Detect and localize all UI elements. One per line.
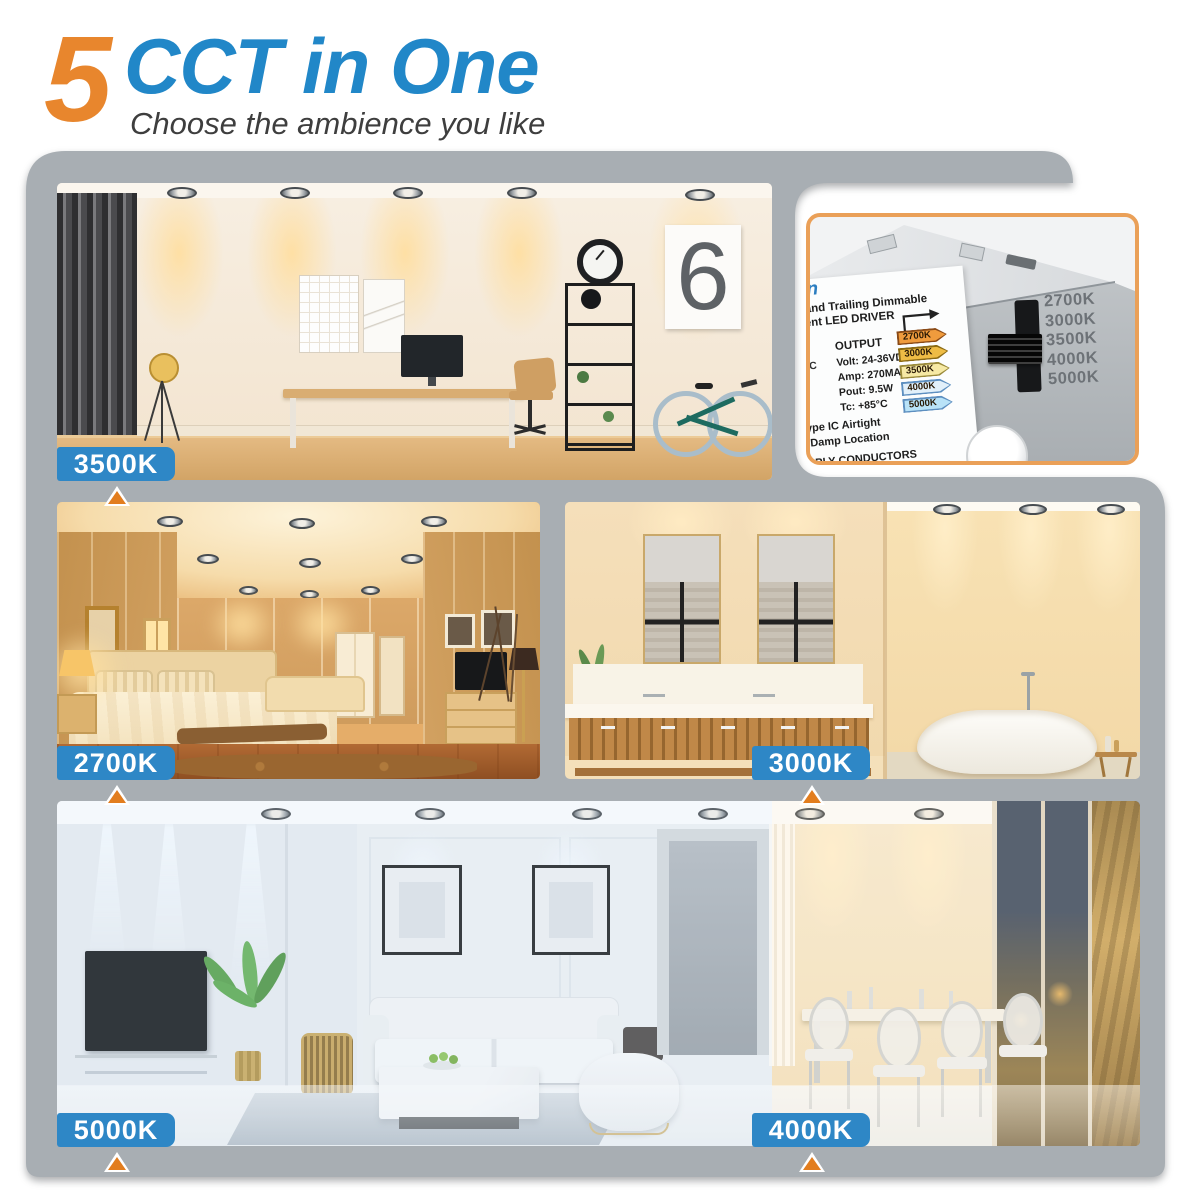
dining-chair-back	[877, 1007, 921, 1069]
downlight-icon	[167, 187, 197, 199]
downlight-icon	[415, 808, 445, 820]
office-photo: 6	[57, 183, 772, 480]
tub-faucet-spout	[1021, 672, 1035, 676]
sofa-back	[369, 997, 619, 1043]
dining-chair-back	[941, 1001, 983, 1061]
switch-scale-step: 2700K	[1043, 290, 1095, 312]
cct-tag-label: 3500K	[899, 363, 940, 378]
cct-badge-2700k: 2700K	[57, 746, 175, 780]
cct-badge-5000k: 5000K	[57, 1113, 175, 1147]
wall-faucet	[753, 694, 775, 697]
downlight-icon	[933, 504, 961, 515]
downlight-icon	[280, 187, 310, 199]
downlight-icon	[507, 187, 537, 199]
cct-tag-2700k: 2700K	[896, 327, 947, 345]
downlight-icon	[361, 586, 380, 595]
slide-switch-knob	[988, 334, 1042, 364]
dining-chair-seat	[999, 1045, 1047, 1057]
note-conductors: PPLY CONDUCTORS	[808, 448, 918, 465]
cct-tag-5000k: 5000K	[902, 395, 953, 413]
downlight-icon	[1097, 504, 1125, 515]
shelf-plant	[603, 411, 614, 422]
cct-tag-label: 2700K	[896, 329, 937, 344]
downlight-icon	[914, 808, 944, 820]
counter	[565, 704, 873, 718]
cct-badge-3000k: 3000K	[752, 746, 870, 780]
spec-tc: Tc: +85°C	[840, 398, 888, 414]
cct-tag-4000k: 4000K	[901, 378, 952, 396]
bedroom-rug	[167, 754, 477, 779]
glassware	[847, 991, 852, 1009]
page-subtitle: Choose the ambience you like	[130, 106, 545, 142]
framed-print	[382, 865, 462, 955]
cabinet-handle	[835, 726, 849, 729]
downlight-icon	[289, 518, 315, 529]
dresser	[445, 692, 517, 746]
bottle	[1105, 736, 1111, 752]
switch-scale-step: 5000K	[1048, 368, 1100, 390]
bathroom-photo	[565, 502, 1140, 779]
stool-lamp	[149, 353, 179, 383]
downlight-icon	[421, 516, 447, 527]
glassware	[869, 987, 873, 1009]
monitor	[401, 335, 463, 377]
downlight-icon	[197, 554, 219, 564]
switch-scale-step: 4000K	[1047, 348, 1099, 370]
art-frame	[445, 614, 475, 648]
desk-leg	[290, 398, 296, 448]
cct-tag-label: 3000K	[898, 346, 939, 361]
framed-print	[532, 865, 610, 955]
bottle	[1114, 740, 1119, 752]
cct-badge-4000k: 4000K	[752, 1113, 870, 1147]
cct-tag-label: 4000K	[901, 380, 942, 395]
plant-pot	[235, 1051, 261, 1081]
spec-pout: Pout: 9.5W	[839, 382, 894, 399]
cabinet-handle	[781, 726, 795, 729]
wall-faucet	[643, 694, 665, 697]
tv-console	[75, 1055, 217, 1058]
living-floor-sheen	[57, 1085, 1140, 1146]
apple	[439, 1052, 448, 1061]
brand-logo-fragment: un	[806, 278, 819, 302]
apple	[429, 1054, 438, 1063]
cct-tag-label: 5000K	[902, 397, 943, 412]
downlight-icon	[795, 808, 825, 820]
bathroom-window	[757, 534, 835, 664]
print-mat	[549, 882, 593, 938]
chair-back	[513, 357, 556, 395]
window-grid	[759, 582, 833, 662]
switch-scale-step: 3000K	[1045, 309, 1097, 331]
downlight-icon	[685, 189, 715, 201]
dining-chair-seat	[873, 1065, 925, 1077]
chaise-sofa	[265, 676, 365, 712]
downlight-icon	[401, 554, 423, 564]
desk-top	[283, 389, 525, 398]
tv-console	[85, 1071, 207, 1074]
downlight-icon	[299, 558, 321, 568]
bathroom-window	[643, 534, 721, 664]
cct-tag-3000k: 3000K	[898, 344, 949, 362]
dining-chair-seat	[937, 1057, 987, 1069]
side-door	[379, 636, 405, 716]
pegboard	[299, 275, 359, 353]
driver-label-sticker: un c)and Trailing Dimmable rrent LED DRI…	[806, 266, 981, 465]
shelf-plant	[577, 371, 589, 383]
floor-lamp-pole	[522, 670, 525, 742]
print-mat	[399, 882, 445, 938]
title-number: 5	[44, 18, 112, 140]
glassware	[919, 989, 924, 1009]
poster-numeral: 6	[676, 223, 729, 330]
downlight-icon	[393, 187, 423, 199]
living-dining-photo	[57, 801, 1140, 1146]
switch-scale: 2700K 3000K 3500K 4000K 5000K	[1043, 290, 1099, 390]
dining-chair-seat	[805, 1049, 853, 1061]
window-glow	[1047, 981, 1073, 1007]
curtain-sheer	[769, 824, 795, 1066]
wall-light-pool	[207, 594, 277, 654]
cabinet-handle	[601, 726, 615, 729]
shelf-ball	[581, 289, 601, 309]
poster: 6	[665, 225, 741, 329]
wall-clock	[577, 239, 623, 285]
bathtub	[917, 710, 1097, 774]
dining-chair-back	[1003, 993, 1043, 1049]
page: 5 CCT in One Choose the ambience you lik…	[0, 0, 1200, 1200]
cabinet-handle	[721, 726, 735, 729]
tv-living	[85, 951, 207, 1051]
cct-tag-3500k: 3500K	[899, 361, 950, 379]
switch-scale-step: 3500K	[1046, 329, 1098, 351]
doorway-inner	[669, 841, 757, 1055]
downlight-icon	[261, 808, 291, 820]
dining-chair-back	[809, 997, 849, 1053]
cct-badge-3500k: 3500K	[57, 447, 175, 481]
backsplash	[573, 664, 863, 704]
downlight-icon	[572, 808, 602, 820]
chair-pole	[528, 400, 532, 428]
page-title: CCT in One	[124, 24, 539, 108]
window-shade	[645, 536, 719, 582]
downlight-icon	[157, 516, 183, 527]
wall-frame	[363, 279, 405, 353]
window-grid	[645, 582, 719, 662]
cct-tag-list: 2700K 3000K 3500K 4000K 5000K	[896, 327, 953, 416]
downlight-icon	[698, 808, 728, 820]
input-fragment: AC	[806, 360, 817, 373]
downlight-icon	[1019, 504, 1047, 515]
chair-seat	[509, 391, 553, 400]
table-leg	[985, 1021, 991, 1083]
driver-closeup-inset: un c)and Trailing Dimmable rrent LED DRI…	[806, 213, 1139, 465]
table-lamp-shade	[59, 650, 95, 676]
shelf-unit	[565, 283, 635, 451]
apple	[449, 1055, 458, 1064]
nightstand	[57, 694, 97, 734]
monitor-stand	[428, 377, 436, 386]
window-shade	[759, 536, 833, 582]
bicycle-seat	[695, 383, 713, 389]
cabinet-handle	[661, 726, 675, 729]
output-heading: OUTPUT	[835, 337, 883, 353]
bedroom-photo	[57, 502, 540, 779]
